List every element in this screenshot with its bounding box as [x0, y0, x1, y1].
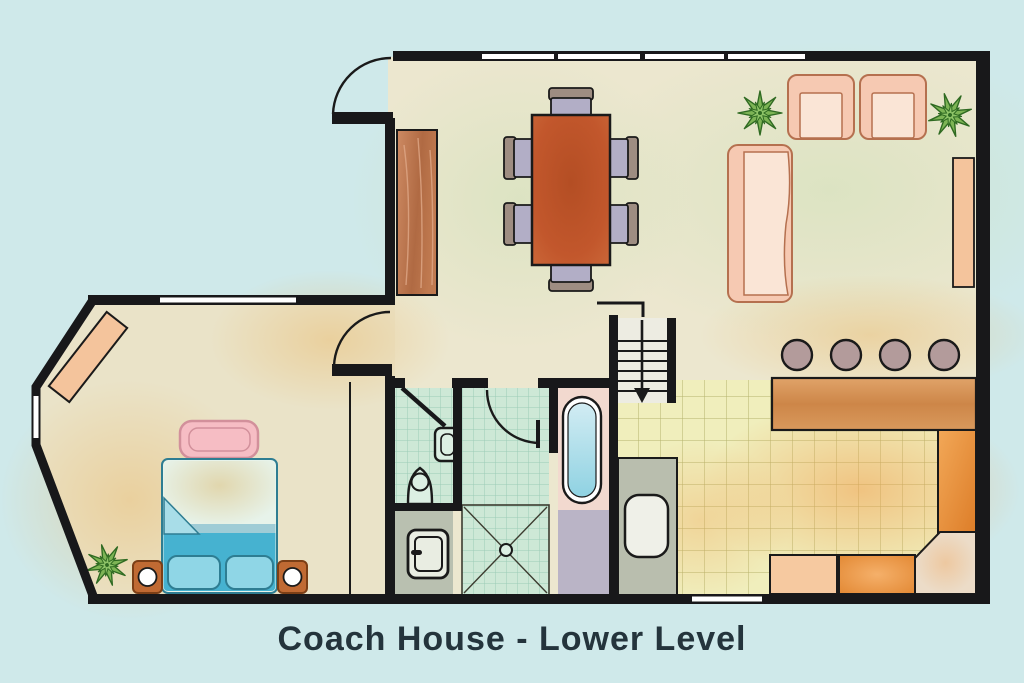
wall-bottom — [88, 594, 990, 604]
armchair — [788, 75, 854, 139]
nightstand — [133, 561, 162, 593]
dining-table — [532, 115, 610, 265]
wall-bedroom-right — [385, 376, 395, 598]
bar-stool — [782, 340, 812, 370]
breakfast-bar-counter — [772, 378, 976, 430]
window-kitchen — [692, 597, 762, 602]
entry-door — [332, 58, 393, 124]
pillow — [226, 556, 273, 589]
dining-chair — [549, 88, 593, 117]
wall-entry-side — [385, 118, 395, 305]
plan-title: Coach House - Lower Level — [0, 620, 1024, 659]
bar-stool — [880, 340, 910, 370]
lamp-icon — [284, 568, 302, 586]
lamp-icon — [139, 568, 157, 586]
bed — [162, 459, 277, 593]
dining-chair — [504, 137, 533, 179]
pillow — [168, 556, 220, 589]
washer — [408, 530, 448, 578]
wall-toilet-laundry — [395, 503, 462, 511]
dining-chair — [504, 203, 533, 245]
window-bay — [34, 396, 39, 438]
kitchen-sink — [625, 495, 668, 557]
stove-counter — [839, 555, 915, 594]
floor-plan-drawing — [0, 0, 1024, 683]
bar-stool — [831, 340, 861, 370]
bar-stool — [929, 340, 959, 370]
bathtub — [563, 397, 601, 503]
window — [558, 54, 640, 59]
base-counter — [770, 555, 837, 594]
sofa — [728, 145, 792, 302]
plant-icon — [738, 91, 782, 135]
refrigerator-counter — [938, 430, 976, 533]
dining-chair — [549, 263, 593, 291]
under-tub-floor — [558, 510, 609, 599]
wall-shower-tub — [549, 383, 558, 453]
wall-toilet-shower — [453, 383, 462, 511]
dining-chair — [609, 203, 638, 245]
armchair — [860, 75, 926, 139]
floor-plan-stage: Coach House - Lower Level — [0, 0, 1024, 683]
utility-counter — [618, 458, 677, 599]
wall-kitchen-bath — [609, 315, 618, 604]
window — [728, 54, 805, 59]
wall-right — [976, 51, 990, 604]
shower-drain-icon — [500, 544, 512, 556]
window — [482, 54, 554, 59]
washer-handle — [411, 550, 422, 555]
window-bedroom — [160, 298, 296, 303]
dining-chair — [609, 137, 638, 179]
window — [645, 54, 724, 59]
wall-shelf — [953, 158, 974, 287]
bed-bench — [180, 421, 258, 458]
nightstand — [278, 561, 307, 593]
shower-room-floor — [462, 388, 549, 599]
